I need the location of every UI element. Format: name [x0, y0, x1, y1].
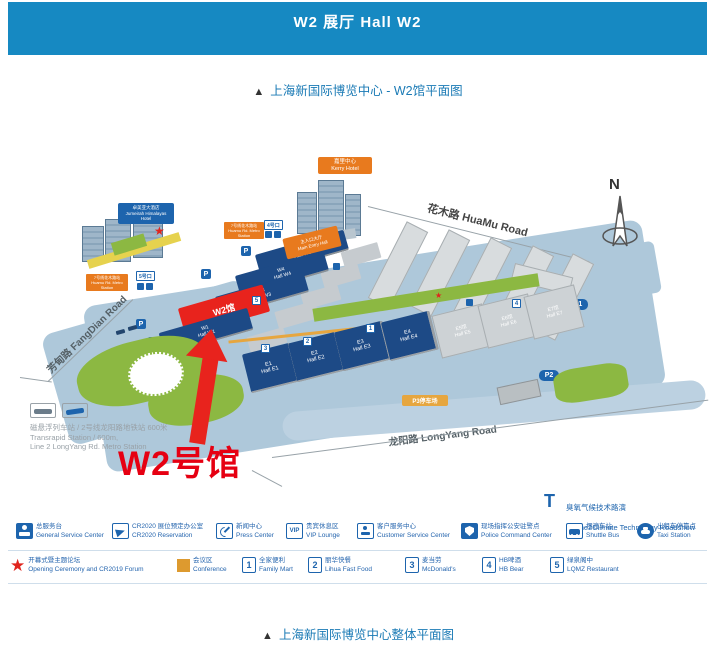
metro-station-label-west: 7号线花木路站 Huamu Rd. Metro Station: [86, 274, 128, 291]
legend-shuttle-bus: 摆渡车站Shuttle Bus: [566, 523, 619, 540]
divider: [8, 550, 707, 551]
facility-icon: [466, 299, 473, 306]
transit-note: 磁悬浮列车站 / 2号线龙阳路地铁站 600米 Transrapid Stati…: [30, 423, 260, 452]
jumeirah-hotel-label: 卓美亚大酒店 Jumeirah Himalayas Hotel: [118, 203, 174, 224]
metro-exit-icon: [146, 283, 153, 290]
legend-press-center: 新闻中心Press Center: [216, 523, 274, 540]
venue-map: 龙阳路 LongYang Road 芳甸路 FangDian Road 花木路 …: [0, 0, 716, 650]
food-marker: 5: [252, 296, 261, 305]
transit-note-line3: Line 2 LongYang Rd. Metro Station: [30, 442, 260, 452]
number-3-icon: 3: [405, 557, 419, 573]
number-2-icon: 2: [308, 557, 322, 573]
legend-customer-service: 客户服务中心Customer Service Center: [357, 523, 450, 540]
legend-family-mart: 1 全家便利Family Mart: [242, 557, 293, 574]
conference-square-icon: [177, 559, 190, 572]
kerry-hotel-label: 嘉里中心 Kerry Hotel: [318, 157, 372, 174]
legend-mcdonalds: 3 麦当劳McDonald's: [405, 557, 456, 574]
metro-exit-icon: [265, 231, 272, 238]
food-marker: 1: [366, 324, 375, 333]
metro-exit-icon: [137, 283, 144, 290]
number-5-icon: 5: [550, 557, 564, 573]
vip-icon: VIP: [286, 523, 303, 539]
transit-note-line1: 磁悬浮列车站 / 2号线龙阳路地铁站 600米: [30, 423, 260, 433]
pointer-arrow-head: [186, 326, 232, 362]
metro-exit-icon: [274, 231, 281, 238]
legend-reservation: CR2020 展位预定办公室CR2020 Reservation: [112, 523, 203, 540]
train-icon: [62, 403, 88, 418]
north-label: N: [609, 176, 620, 193]
satellite-dish-icon: [216, 523, 233, 539]
legend-police-command: 现场指挥公安驻警点Police Command Center: [461, 523, 552, 540]
parking-icon: P: [241, 246, 251, 256]
star-icon: ★: [154, 224, 165, 238]
compass-icon: [596, 194, 644, 266]
facility-icon: [333, 263, 340, 270]
legend-taxi-station: 出租车停靠点Taxi Station: [637, 523, 696, 540]
police-badge-icon: [461, 523, 478, 539]
reservation-icon: [112, 523, 129, 539]
shuttle-bus-icon: [566, 523, 583, 539]
kerry-hotel-tower: [297, 192, 317, 234]
ozone-zh: 臭氧气候技术路演: [566, 503, 695, 513]
legend-vip-lounge: VIP 贵宾休息区VIP Lounge: [286, 523, 340, 540]
legend-lihua-fast-food: 2 丽华快餐Lihua Fast Food: [308, 557, 372, 574]
number-4-icon: 4: [482, 557, 496, 573]
legend-lqmz-restaurant: 5 绿泉阁中LQMZ Restaurant: [550, 557, 619, 574]
parking-icon: P: [201, 269, 211, 279]
number-1-icon: 1: [242, 557, 256, 573]
food-marker: 3: [261, 344, 270, 353]
metro-exit4-label: 4号口: [264, 220, 283, 230]
maglev-icon: [30, 403, 56, 418]
metro-exit5-label: 5号口: [136, 271, 155, 281]
service-desk-icon: [16, 523, 33, 539]
star-icon: ★: [10, 557, 25, 574]
legend-opening-ceremony: ★ 开幕式暨主题论坛Opening Ceremony and CR2019 Fo…: [10, 557, 144, 574]
ozone-t-icon: T: [544, 491, 555, 512]
legend-general-service: 总服务台General Service Center: [16, 523, 104, 540]
transit-note-line2: Transrapid Station / 600m,: [30, 433, 260, 443]
legend-conference: 会议区Conference: [177, 557, 227, 574]
star-icon: ★: [435, 291, 442, 300]
parking-lot-p3: P3停车场: [402, 395, 448, 406]
customer-desk-icon: [357, 523, 374, 539]
divider: [8, 583, 707, 584]
taxi-icon: [637, 523, 654, 539]
map-caption-bottom: ▲上海新国际博览中心整体平面图: [0, 624, 716, 643]
metro-station-label-north: 7号线花木路站 Huamu Rd. Metro Station: [224, 222, 264, 239]
food-marker: 2: [303, 337, 312, 346]
page: W2 展厅 Hall W2 ▲上海新国际博览中心 - W2馆平面图 龙阳路 Lo…: [0, 0, 716, 650]
parking-icon: P: [136, 319, 146, 329]
food-marker: 4: [512, 299, 521, 308]
road-outline: [252, 470, 282, 487]
map-caption-bottom-text: 上海新国际博览中心整体平面图: [279, 628, 454, 642]
legend-hb-beer: 4 HB啤酒HB Bear: [482, 557, 524, 574]
triangle-icon: ▲: [262, 630, 273, 642]
